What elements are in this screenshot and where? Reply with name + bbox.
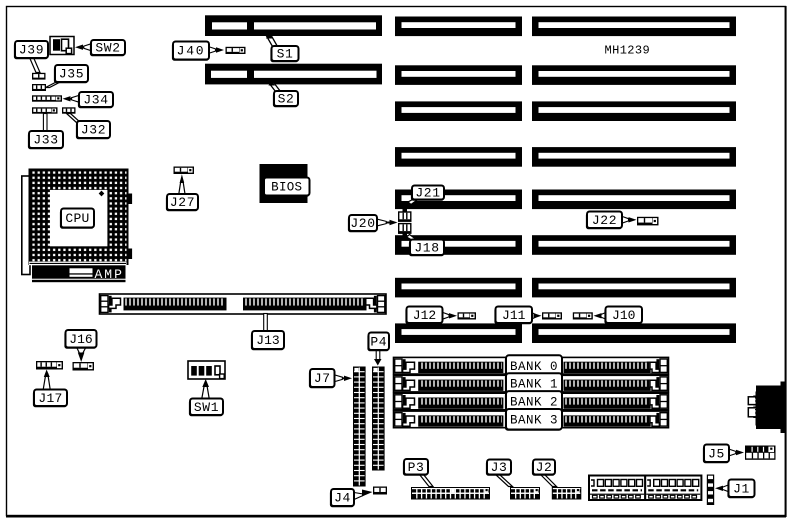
svg-text:J33: J33 xyxy=(33,133,58,148)
svg-text:P3: P3 xyxy=(408,460,425,475)
svg-text:J16: J16 xyxy=(69,332,92,347)
svg-text:BANK 0: BANK 0 xyxy=(510,360,558,374)
svg-text:J22: J22 xyxy=(592,213,617,228)
svg-text:SW1: SW1 xyxy=(194,400,219,415)
svg-text:BANK 3: BANK 3 xyxy=(510,413,558,427)
svg-text:J20: J20 xyxy=(350,216,375,231)
svg-text:J10: J10 xyxy=(612,308,635,323)
svg-text:J3: J3 xyxy=(491,460,508,475)
svg-text:BIOS: BIOS xyxy=(271,181,302,195)
svg-text:J21: J21 xyxy=(415,186,440,201)
svg-text:J27: J27 xyxy=(170,195,195,210)
svg-text:J35: J35 xyxy=(59,67,84,82)
svg-text:BANK 2: BANK 2 xyxy=(510,396,558,410)
svg-text:P4: P4 xyxy=(370,334,387,349)
svg-text:J7: J7 xyxy=(314,371,331,386)
svg-text:BANK 1: BANK 1 xyxy=(510,378,558,392)
svg-text:J34: J34 xyxy=(83,93,108,108)
svg-text:J13: J13 xyxy=(256,333,279,348)
svg-text:SW2: SW2 xyxy=(95,41,120,56)
svg-text:MH1239: MH1239 xyxy=(605,44,651,58)
svg-text:J5: J5 xyxy=(708,446,725,461)
svg-text:J1: J1 xyxy=(733,481,750,496)
svg-text:J18: J18 xyxy=(414,240,439,255)
svg-text:J2: J2 xyxy=(536,460,553,475)
svg-text:J4: J4 xyxy=(334,491,351,506)
svg-text:S2: S2 xyxy=(278,92,295,107)
svg-text:J11: J11 xyxy=(502,308,526,323)
svg-text:J32: J32 xyxy=(81,123,106,138)
svg-text:J40: J40 xyxy=(177,44,206,59)
svg-text:J39: J39 xyxy=(19,43,44,58)
svg-text:AMP: AMP xyxy=(95,267,124,282)
svg-text:J12: J12 xyxy=(413,308,436,323)
svg-text:J17: J17 xyxy=(38,391,62,406)
svg-text:S1: S1 xyxy=(277,47,294,62)
svg-text:CPU: CPU xyxy=(65,211,89,226)
